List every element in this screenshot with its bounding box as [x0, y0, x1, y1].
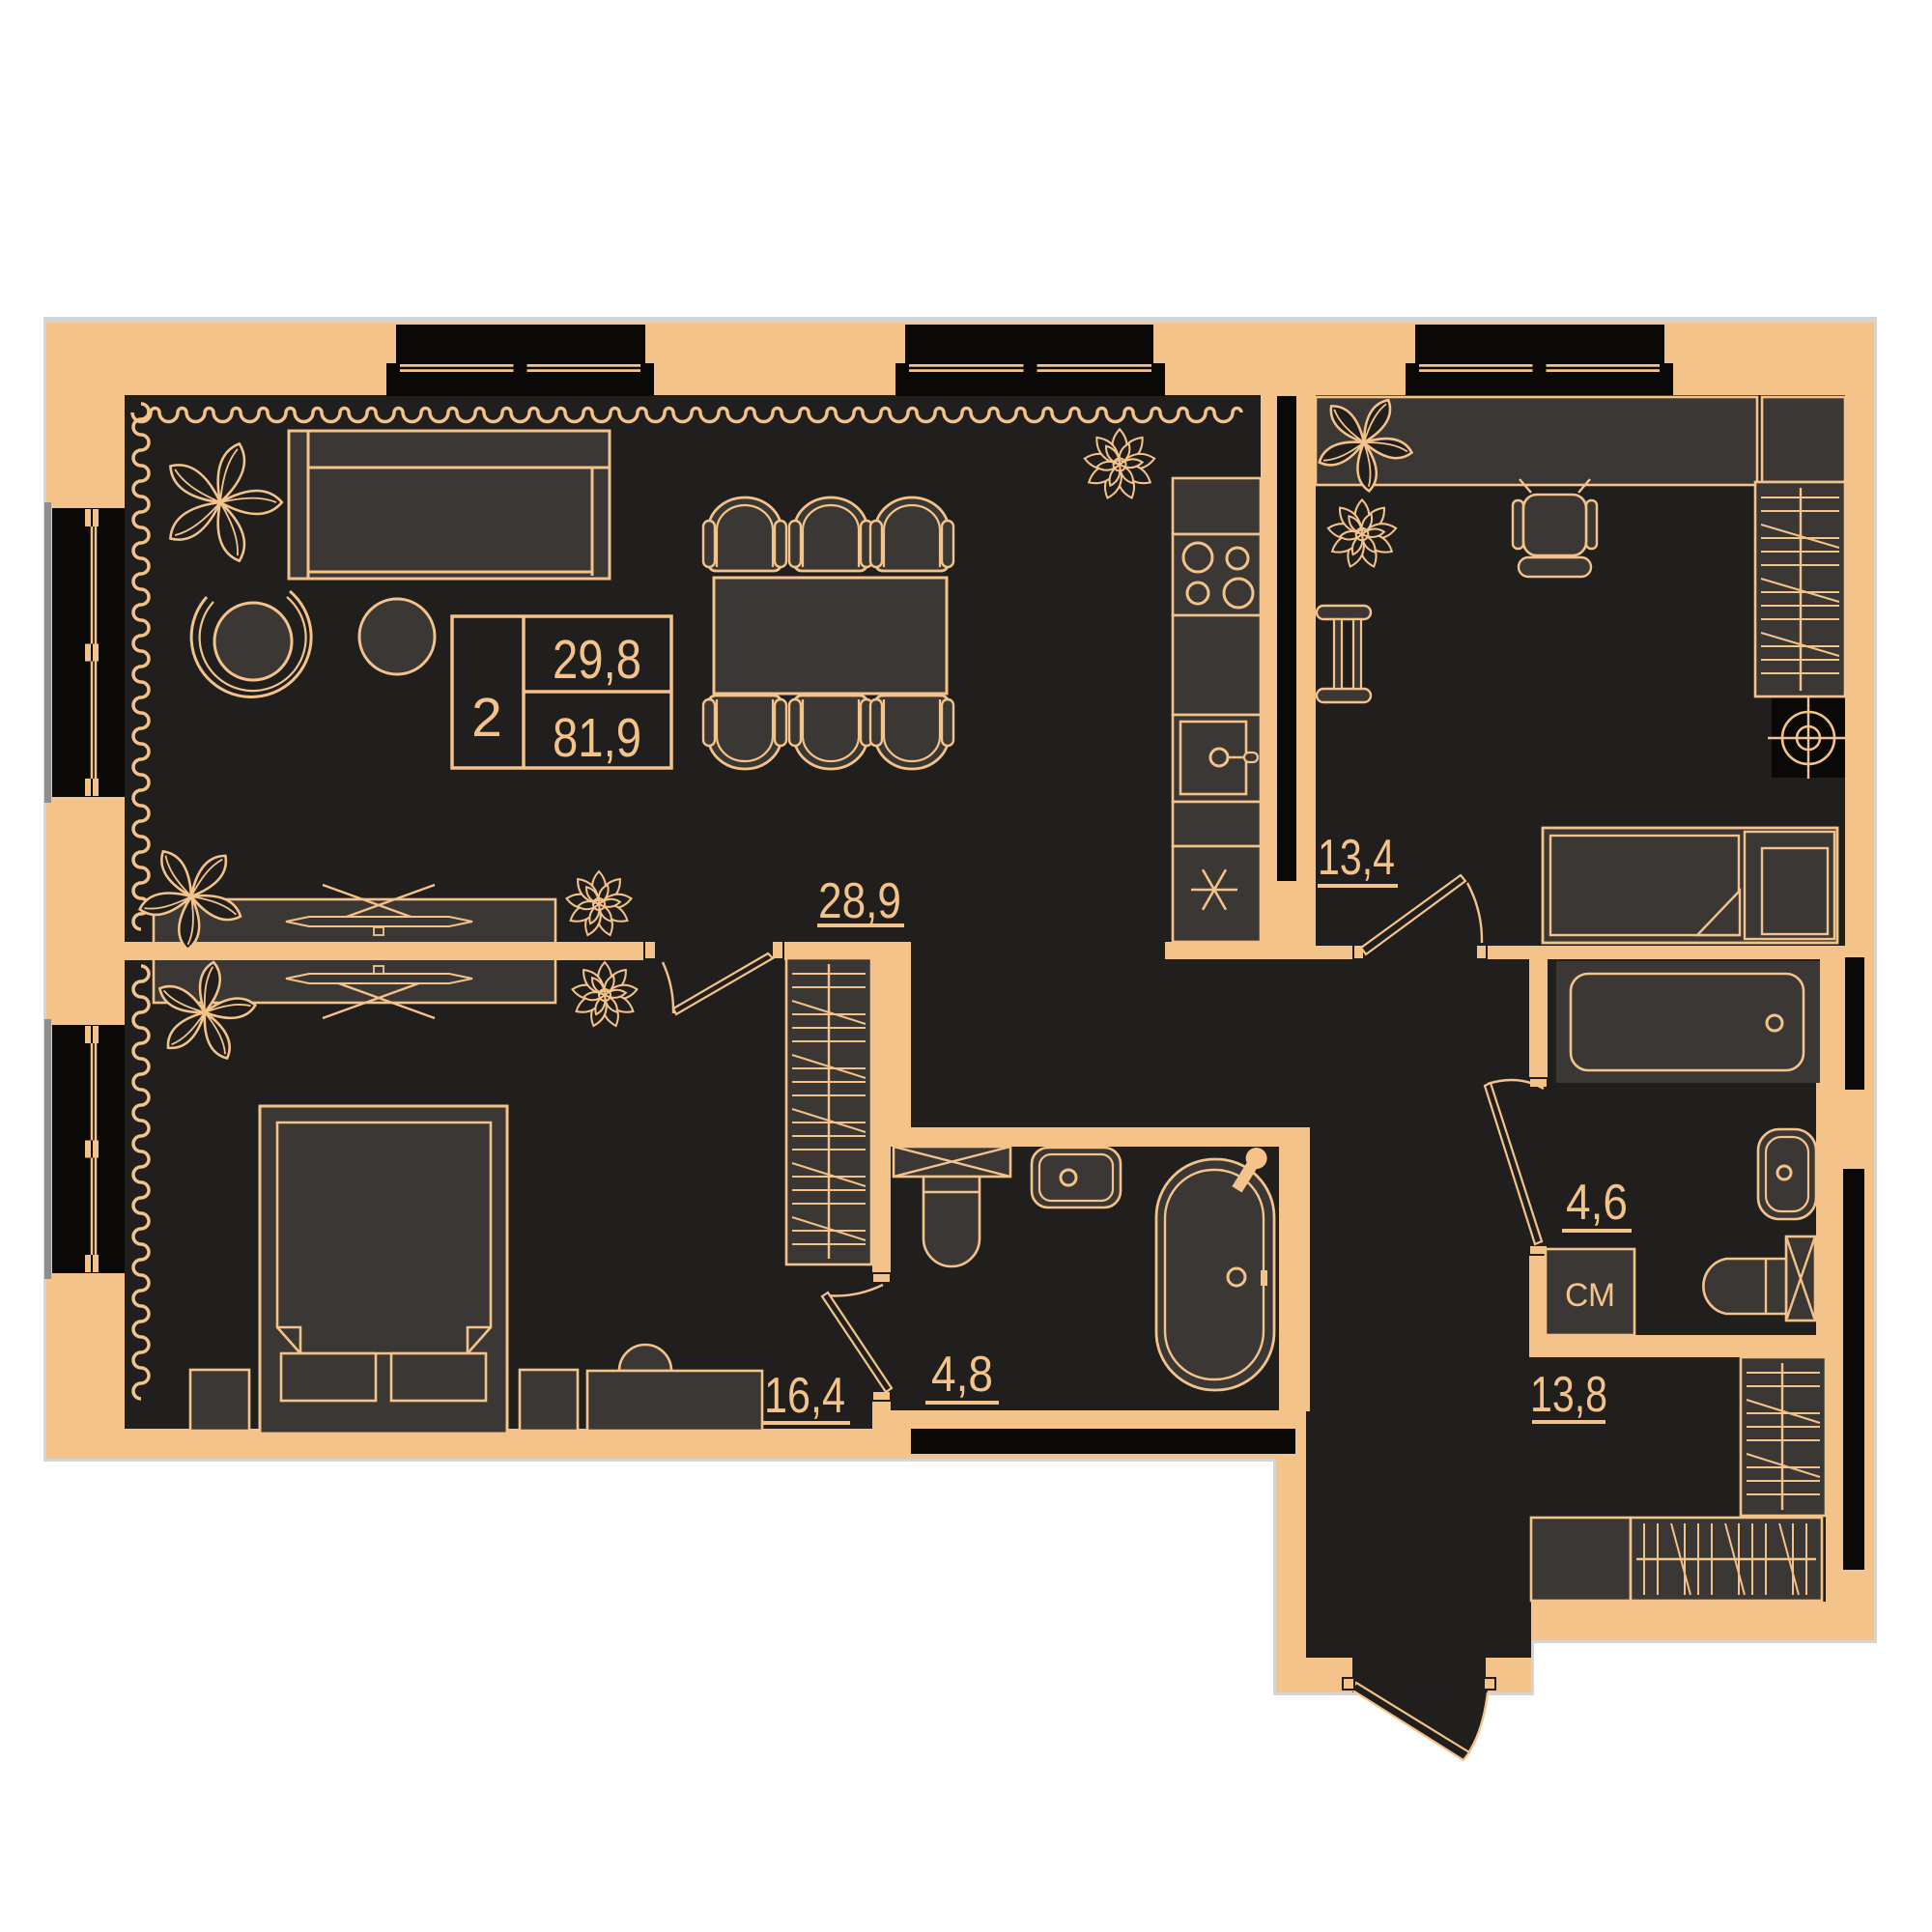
svg-text:СМ: СМ [1565, 1277, 1615, 1314]
svg-text:2: 2 [471, 687, 502, 749]
svg-text:4,6: 4,6 [1566, 1175, 1628, 1231]
svg-text:13,8: 13,8 [1530, 1367, 1607, 1423]
svg-text:4,8: 4,8 [931, 1347, 993, 1403]
svg-text:16,4: 16,4 [764, 1368, 845, 1424]
svg-text:13,4: 13,4 [1318, 830, 1395, 886]
svg-text:29,8: 29,8 [553, 629, 641, 691]
svg-text:81,9: 81,9 [553, 707, 641, 769]
svg-text:28,9: 28,9 [818, 873, 901, 929]
